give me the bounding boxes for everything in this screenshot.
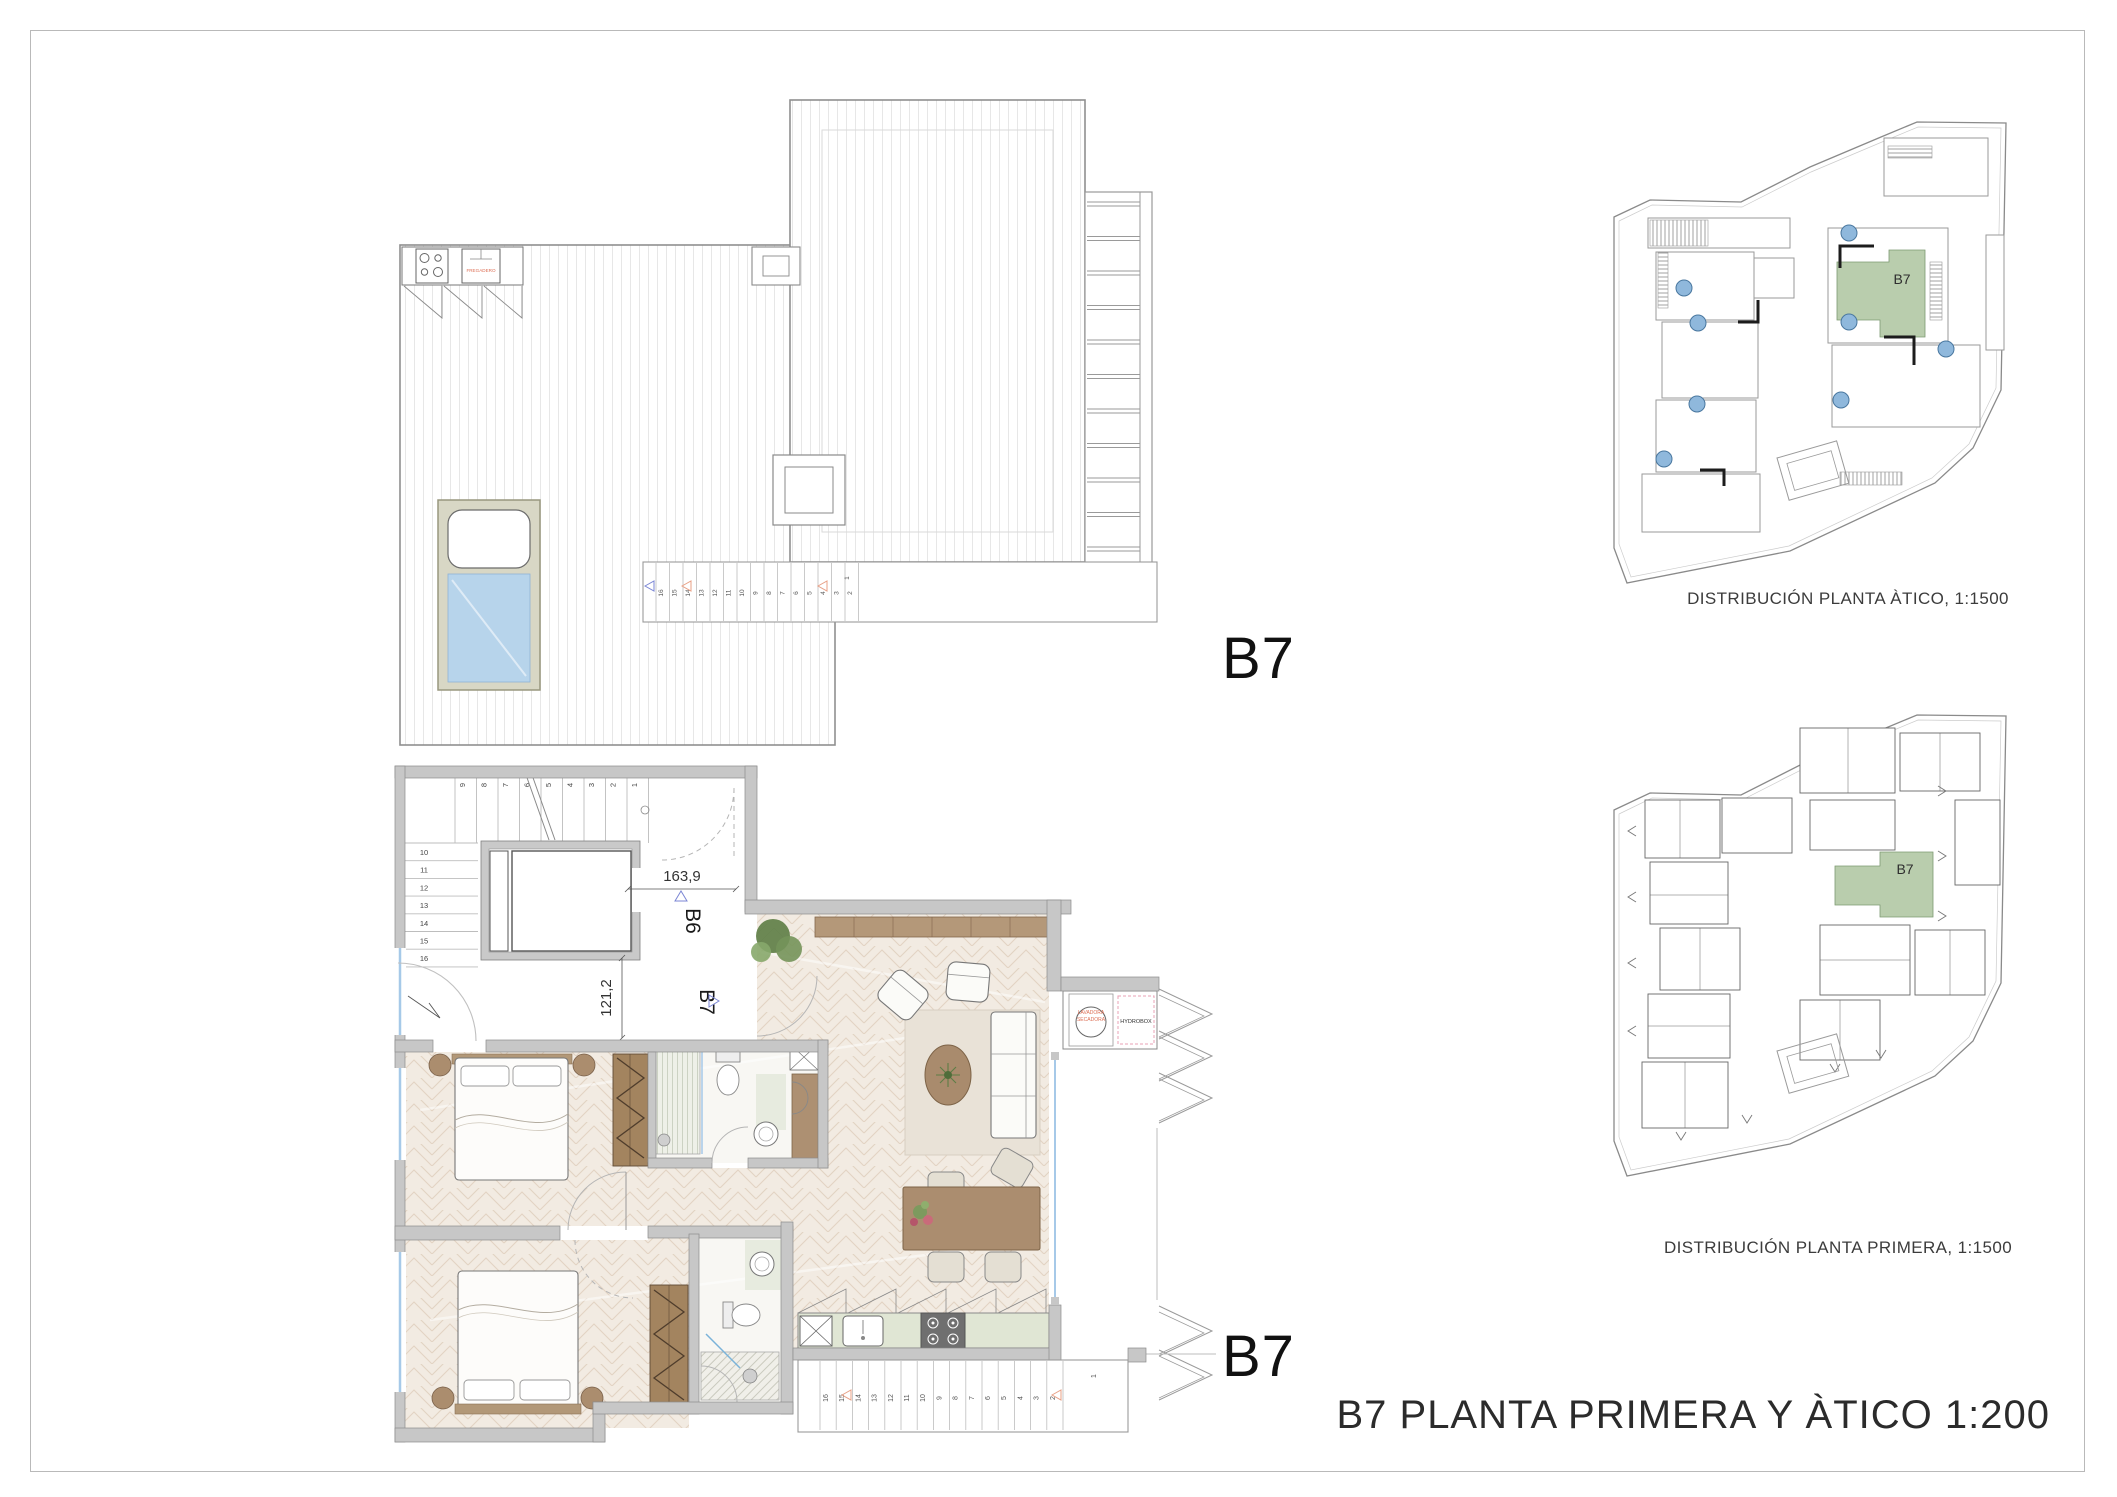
stair-number: 16: [420, 954, 428, 963]
stair-number: 14: [855, 1394, 862, 1402]
stair-number: 4: [1017, 1396, 1024, 1400]
hydrobox: HYDROBOX: [1118, 996, 1154, 1044]
stair-number: 7: [501, 783, 510, 787]
dim-height-text: 121,2: [598, 979, 615, 1017]
stair-number: 5: [1001, 1396, 1008, 1400]
washbasin-icon: [750, 1252, 774, 1276]
site-plan-primera-caption: DISTRIBUCIÓN PLANTA PRIMERA, 1:1500: [1664, 1238, 2012, 1258]
nightstand: [573, 1054, 595, 1076]
stair-number: 15: [420, 937, 428, 946]
stair-number: 14: [420, 919, 428, 928]
unit-label-bottom: B7: [1222, 1328, 1295, 1386]
stair-number: 10: [920, 1394, 927, 1402]
stair-number: 6: [985, 1396, 992, 1400]
unit-label-top: B7: [1222, 630, 1295, 688]
stair-number: 11: [726, 589, 733, 596]
toilet-icon: [716, 1050, 740, 1095]
stair-number: 5: [544, 783, 553, 787]
spa-bench: [448, 510, 530, 568]
stair-number: 7: [969, 1396, 976, 1400]
stair-number: 5: [807, 591, 814, 595]
dim-width-text: 163,9: [663, 868, 701, 885]
stair-number: 12: [888, 1394, 895, 1402]
sink-icon: FREGADERO: [462, 249, 500, 283]
site-plan-atico: B7: [1614, 122, 2006, 583]
bed: [452, 1054, 572, 1180]
coffee-table: [925, 1045, 971, 1105]
primera-floor-plan: 987654321 10111213141516 163,9 121,2 B6 …: [394, 766, 1216, 1442]
stair-number: 1: [630, 783, 639, 787]
atico-floor-plan: FREGADERO 1615141312111098765432 1: [400, 100, 1157, 745]
nightstand: [429, 1054, 451, 1076]
stair-number: 13: [420, 901, 428, 910]
stair-number: 6: [793, 591, 800, 595]
stair-number: 9: [936, 1396, 943, 1400]
stair-number: 10: [420, 848, 428, 857]
stair-number: 2: [847, 591, 854, 595]
dimension-width: [625, 886, 739, 892]
stove-icon: [921, 1313, 965, 1348]
atico-stair: 1615141312111098765432 1: [643, 562, 1157, 622]
stair-number: 9: [458, 783, 467, 787]
stair-number: 9: [753, 591, 760, 595]
stair-number: 3: [1034, 1396, 1041, 1400]
unit-b7-label: B7: [695, 989, 718, 1015]
wardrobe: [613, 1054, 648, 1166]
stair-number: 16: [823, 1394, 830, 1402]
shower: [701, 1352, 779, 1400]
dimension-height: [619, 955, 625, 1041]
balcony-railing: [1128, 989, 1216, 1400]
toilet-icon: [723, 1302, 760, 1328]
elevator: [481, 841, 642, 960]
b6-marker: [675, 891, 687, 901]
sink-label: FREGADERO: [466, 268, 496, 273]
plan-drawing: FREGADERO 1615141312111098765432 1: [0, 0, 2117, 1497]
stair-landing-number: 1: [844, 576, 851, 580]
site-plan-atico-caption: DISTRIBUCIÓN PLANTA ÀTICO, 1:1500: [1687, 589, 2009, 609]
hydrobox-label: HYDROBOX: [1120, 1019, 1152, 1025]
stair-number: 10: [739, 589, 746, 597]
stair-number: 13: [699, 589, 706, 597]
stair-number: 11: [904, 1394, 911, 1401]
exterior-stair: 1615141312111098765432 1: [798, 1360, 1128, 1432]
stair-number: 8: [953, 1396, 960, 1400]
bedroom-1: [429, 1054, 648, 1180]
stair-number: 8: [766, 591, 773, 595]
stair-number: 15: [672, 589, 679, 597]
bedroom-2: [432, 1271, 688, 1414]
stair-number: 4: [820, 591, 827, 595]
stair-number: 13: [872, 1394, 879, 1402]
stair-number: 12: [420, 883, 428, 892]
entry-door-arc: [662, 788, 734, 860]
kitchen-sink-icon: [843, 1316, 883, 1346]
stair-number: 3: [834, 591, 841, 595]
stair-number: 8: [480, 783, 489, 787]
pool: [438, 500, 540, 690]
washer-label-1: LAVADORA: [1078, 1010, 1105, 1016]
vanity: [792, 1074, 818, 1160]
bed: [455, 1271, 581, 1414]
site-unit-label: B7: [1893, 271, 1910, 287]
stair-number: 12: [712, 589, 719, 597]
stair-number: 7: [780, 591, 787, 595]
stair-number: 11: [420, 866, 428, 875]
wardrobe: [650, 1285, 688, 1411]
pergola: [1085, 192, 1152, 576]
washbasin-icon: [754, 1122, 778, 1146]
drawing-sheet: FREGADERO 1615141312111098765432 1: [0, 0, 2117, 1497]
site-plan-primera: B7: [1614, 715, 2006, 1176]
stair-landing-number: 1: [1091, 1374, 1098, 1378]
stair-head-box: [773, 455, 845, 525]
bath-mat: [756, 1074, 786, 1130]
site-unit-label: B7: [1896, 861, 1913, 877]
washer-label-2: SECADORA: [1077, 1017, 1106, 1023]
skylight-box: [752, 247, 800, 285]
armchair: [945, 961, 990, 1003]
stair-number: 16: [658, 589, 665, 597]
stair-number: 2: [609, 783, 618, 787]
washer-dryer-icon: LAVADORA SECADORA: [1069, 994, 1113, 1046]
utility-closet: LAVADORA SECADORA HYDROBOX: [1063, 991, 1157, 1049]
sideboard: [815, 917, 1051, 937]
sheet-title: B7 PLANTA PRIMERA Y ÀTICO 1:200: [1336, 1393, 2050, 1438]
stair-number: 3: [587, 783, 596, 787]
shaft-icon: [800, 1316, 832, 1346]
sofa: [991, 1012, 1036, 1138]
stair-number: 4: [566, 783, 575, 787]
unit-b6-label: B6: [681, 908, 704, 934]
nightstand: [432, 1387, 454, 1409]
